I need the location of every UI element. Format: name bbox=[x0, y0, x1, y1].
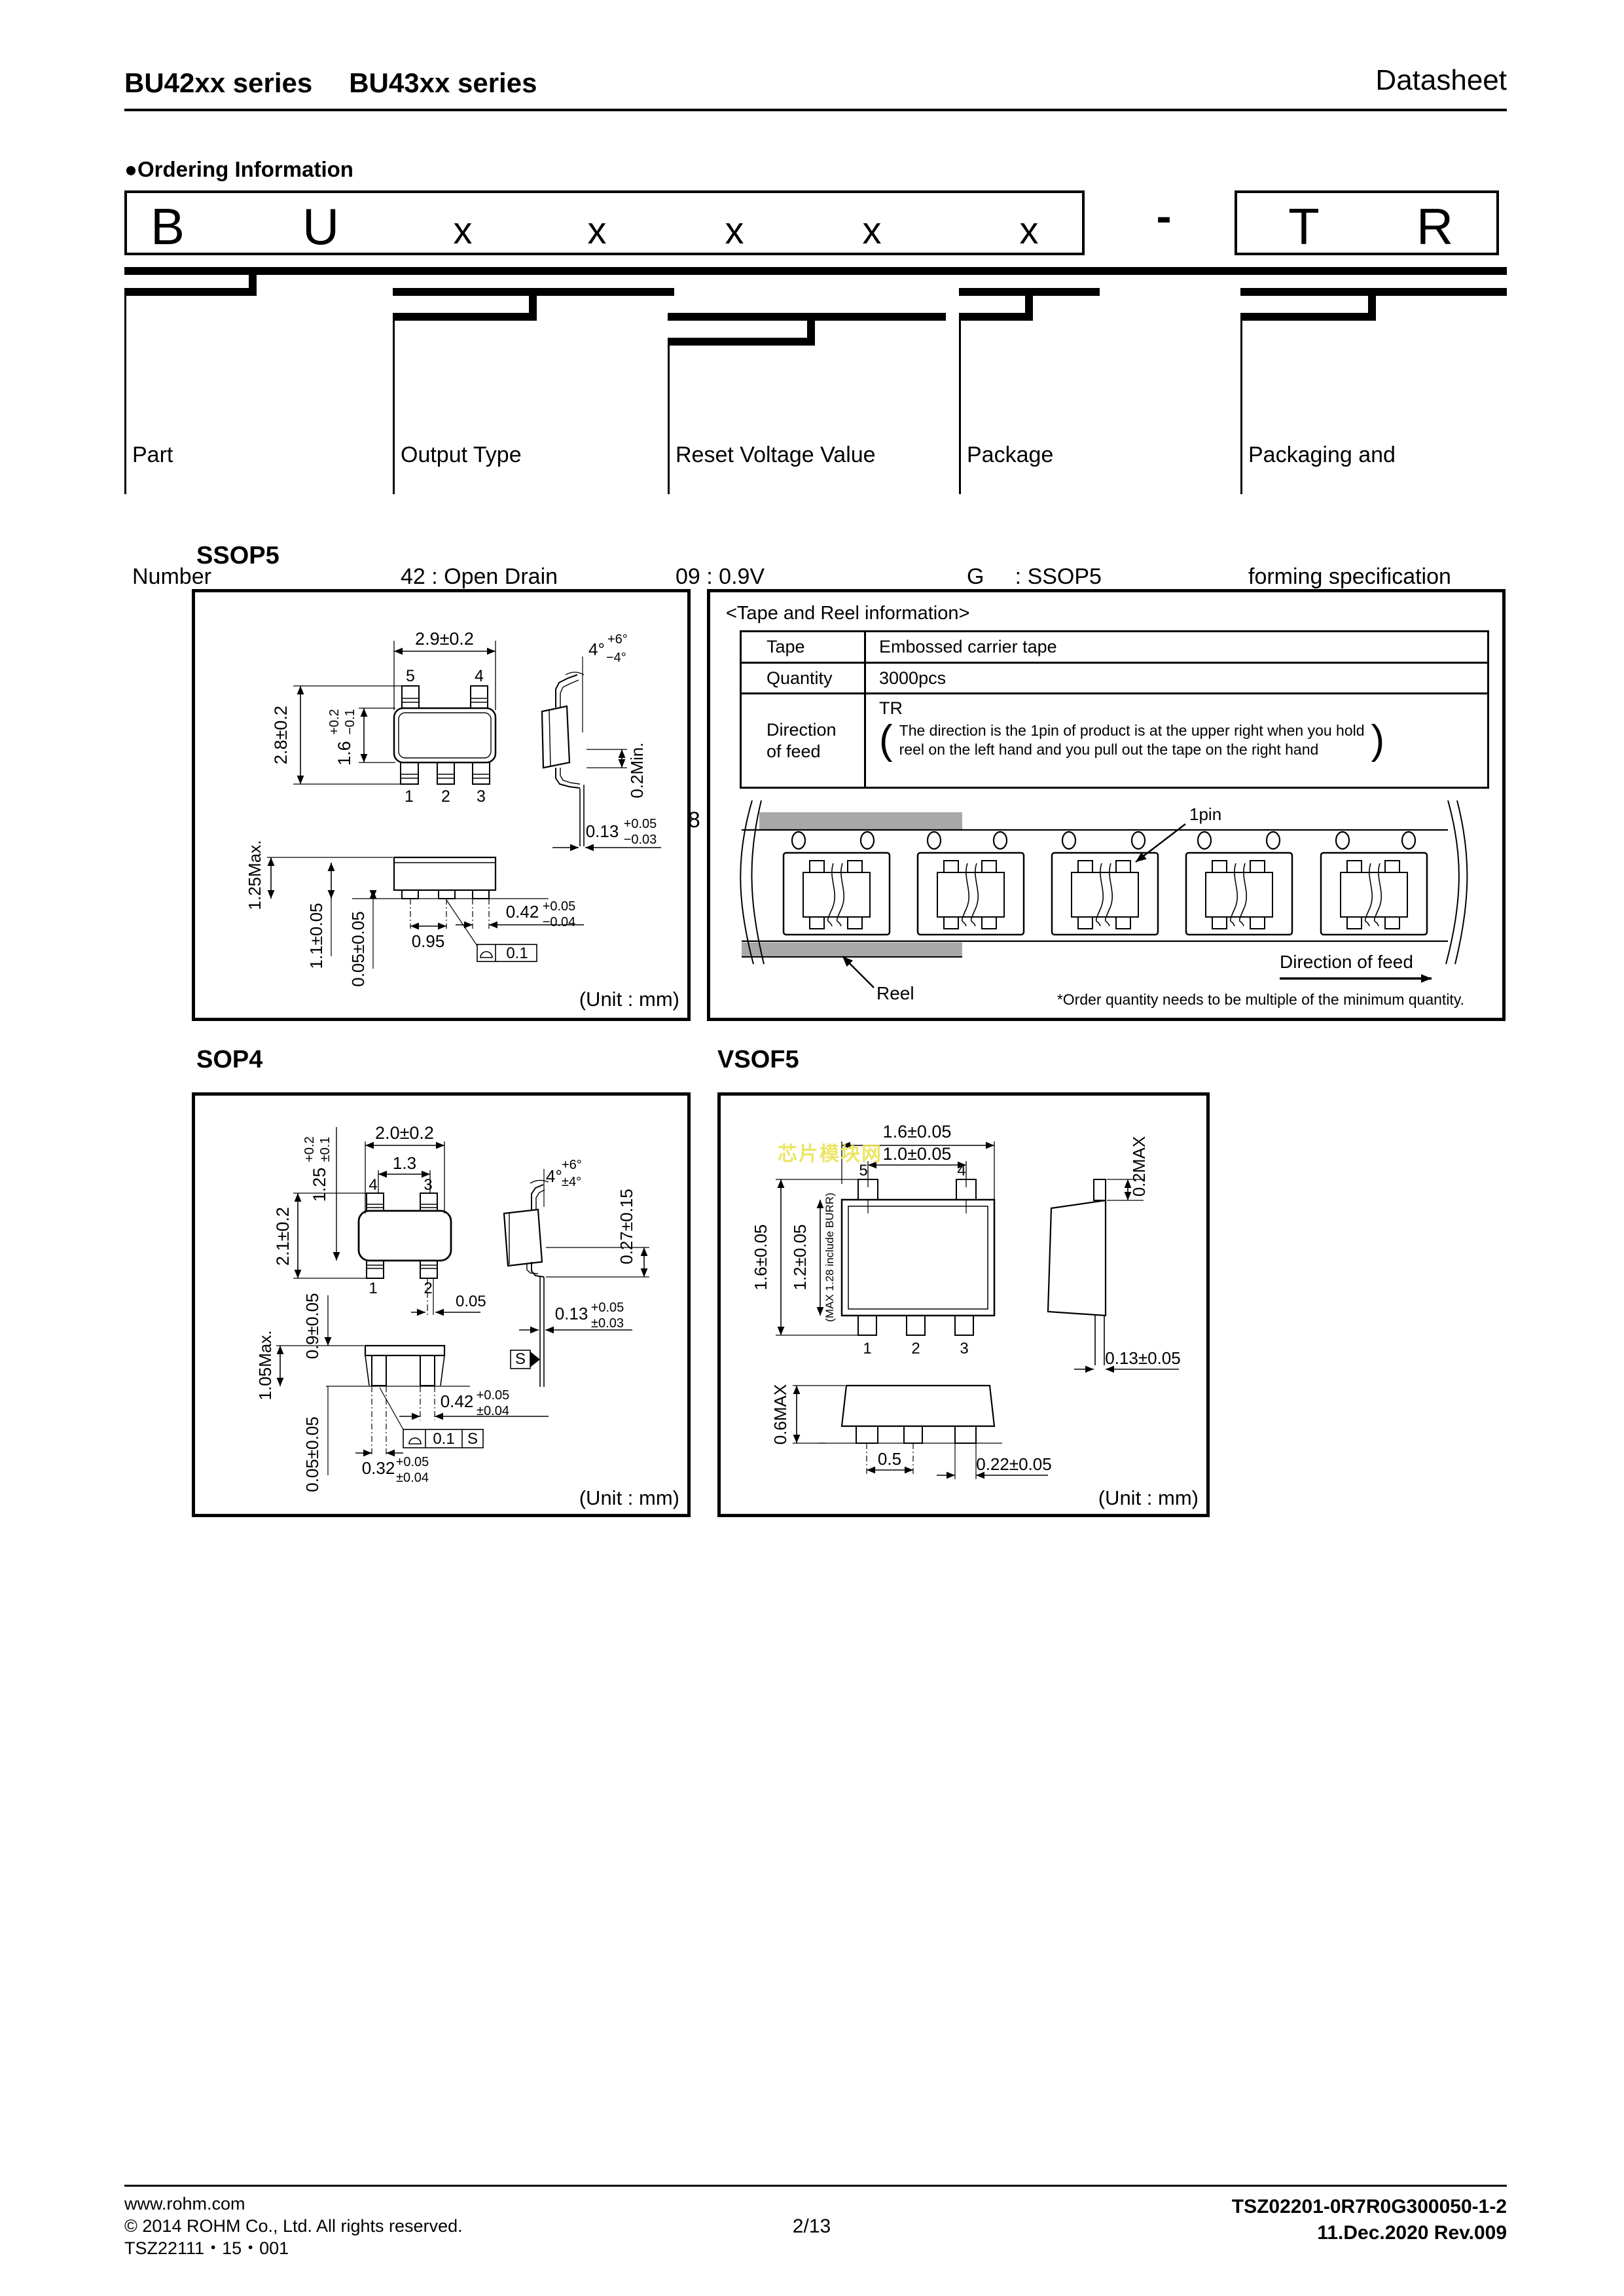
dim-tolerance: +0.05 bbox=[591, 1300, 624, 1315]
reel-callout: Reel bbox=[876, 983, 914, 1003]
paren-close: ) bbox=[1371, 720, 1385, 761]
dim-tolerance: +0.05 bbox=[624, 817, 657, 831]
col2-subbar bbox=[393, 313, 537, 321]
col2-stub bbox=[529, 296, 537, 314]
datum-label: S bbox=[515, 1350, 526, 1368]
suffix-char-r: R bbox=[1405, 197, 1464, 257]
tape-pocket bbox=[1321, 853, 1427, 935]
row-label: of feed bbox=[767, 741, 864, 762]
dim-label: 1.3 bbox=[393, 1153, 416, 1173]
col5-line bbox=[1240, 321, 1242, 494]
reel-arrow bbox=[842, 956, 874, 988]
feed-direction-label: Direction of feed bbox=[1280, 952, 1413, 972]
col4-stub bbox=[1025, 296, 1033, 314]
paren-open: ( bbox=[879, 720, 893, 761]
direction-note-line: The direction is the 1pin of product is … bbox=[899, 722, 1365, 739]
pin-number: 3 bbox=[960, 1340, 968, 1357]
table-row-direction: Direction of feed TR ( The direction is … bbox=[742, 694, 1487, 787]
order-note: *Order quantity needs to be multiple of … bbox=[1057, 991, 1464, 1008]
dim-label: 0.13±0.05 bbox=[1105, 1348, 1180, 1368]
pin1-callout: 1pin bbox=[1189, 804, 1221, 824]
dim-label: 0.13 bbox=[586, 821, 619, 841]
dim-tolerance: +0.2 bbox=[302, 1136, 317, 1162]
ordering-main-bar bbox=[124, 267, 1507, 275]
dim-tolerance: −0.04 bbox=[543, 915, 576, 929]
row-value: 3000pcs bbox=[879, 668, 946, 689]
pin-number: 1 bbox=[405, 787, 414, 806]
code-char-3: x bbox=[433, 209, 492, 253]
dim-label: 0.2MAX bbox=[1129, 1136, 1149, 1197]
table-row-quantity: Quantity 3000pcs bbox=[742, 664, 1487, 694]
tape-cover-bottom bbox=[742, 942, 962, 957]
dim-tolerance: ±0.03 bbox=[591, 1316, 624, 1331]
flatness-value: 0.1 bbox=[433, 1430, 454, 1448]
pin-number: 1 bbox=[863, 1340, 871, 1357]
pin-number: 4 bbox=[475, 667, 484, 685]
dim-label: 1.05Max. bbox=[255, 1331, 275, 1401]
dim-label: 0.27±0.15 bbox=[617, 1189, 636, 1264]
dim-label: 0.05±0.05 bbox=[302, 1416, 322, 1492]
col4-tab bbox=[959, 288, 1100, 296]
dim-tolerance: +6° bbox=[607, 632, 628, 647]
pin-number: 3 bbox=[424, 1176, 432, 1194]
pin-number: 4 bbox=[957, 1162, 965, 1179]
direction-note-line: reel on the left hand and you pull out t… bbox=[899, 741, 1319, 758]
pin-number: 3 bbox=[477, 787, 486, 806]
unit-label: (Unit : mm) bbox=[1098, 1486, 1199, 1509]
datum-label: S bbox=[467, 1430, 478, 1448]
row-value: Embossed carrier tape bbox=[879, 637, 1057, 657]
footer-doc-number: TSZ02201-0R7R0G300050-1-2 bbox=[1232, 2194, 1507, 2220]
col2-tab bbox=[393, 288, 674, 296]
col1-line bbox=[124, 296, 126, 494]
pin-number: 1 bbox=[369, 1280, 377, 1297]
col3-stub bbox=[807, 321, 815, 339]
code-char-2: U bbox=[291, 197, 350, 257]
sop4-drawing: 2.0±0.2 1.3 1.25 +0.2 ±0.1 2.1±0.2 4 3 1… bbox=[195, 1096, 687, 1514]
series-title-right: BU43xx series bbox=[349, 67, 537, 99]
dim-label: 0.5 bbox=[878, 1449, 901, 1469]
dim-tolerance: ±0.04 bbox=[396, 1471, 429, 1485]
code-char-7: x bbox=[1000, 209, 1058, 253]
dim-label: 1.0±0.05 bbox=[883, 1144, 952, 1164]
footer-rule bbox=[124, 2185, 1507, 2187]
tape-reel-title: <Tape and Reel information> bbox=[726, 603, 969, 624]
part-code-box: B U x x x x x bbox=[124, 190, 1085, 255]
dim-tolerance: −0.03 bbox=[624, 833, 657, 847]
code-char-1: B bbox=[138, 197, 197, 257]
ssop5-drawing-box: 2.9±0.2 5 4 1 2 3 2.8±0.2 1.6 +0.2 −0.1 … bbox=[192, 589, 691, 1021]
dim-label: 4° bbox=[546, 1166, 562, 1186]
dim-tolerance: ±0.04 bbox=[477, 1404, 509, 1418]
pin-number: 2 bbox=[424, 1280, 432, 1297]
datasheet-page: BU42xx series BU43xx series Datasheet ●O… bbox=[0, 0, 1624, 2296]
row-label: Quantity bbox=[767, 668, 864, 689]
direction-code: TR bbox=[879, 698, 903, 719]
tape-cover-top bbox=[759, 812, 962, 829]
dim-label: 0.32 bbox=[362, 1458, 395, 1478]
row-label: Tape bbox=[767, 637, 864, 657]
pin-number: 2 bbox=[441, 787, 450, 806]
code-char-4: x bbox=[568, 209, 626, 253]
dim-label: 2.9±0.2 bbox=[415, 629, 474, 649]
dim-label: 1.25 bbox=[310, 1168, 329, 1202]
dim-label: 0.2Min. bbox=[627, 742, 647, 798]
dim-label: 1.25Max. bbox=[245, 840, 264, 910]
tape-reel-box: <Tape and Reel information> Tape Embosse… bbox=[707, 589, 1506, 1021]
col3-bar bbox=[668, 313, 946, 321]
dim-label: 0.22±0.05 bbox=[976, 1454, 1051, 1474]
footer-url: www.rohm.com bbox=[124, 2193, 463, 2215]
dim-label: (MAX 1.28 include BURR) bbox=[823, 1193, 836, 1321]
suffix-char-t: T bbox=[1274, 197, 1333, 257]
code-char-6: x bbox=[842, 209, 901, 253]
flatness-value: 0.1 bbox=[506, 944, 528, 962]
col3-line bbox=[668, 346, 670, 494]
bullet-icon: ● bbox=[124, 157, 137, 181]
col4-line bbox=[959, 321, 961, 494]
dim-label: 4° bbox=[588, 639, 605, 659]
col5-subbar bbox=[1240, 313, 1376, 321]
suffix-box: T R bbox=[1235, 190, 1499, 255]
footer-revision: 11.Dec.2020 Rev.009 bbox=[1232, 2220, 1507, 2246]
dim-label: 2.8±0.2 bbox=[271, 706, 291, 764]
dim-label: 0.42 bbox=[441, 1391, 474, 1411]
col5-tab bbox=[1240, 288, 1507, 296]
unit-label: (Unit : mm) bbox=[579, 988, 679, 1011]
dim-tolerance: +0.05 bbox=[396, 1455, 429, 1469]
col2-line bbox=[393, 321, 395, 494]
doc-type-label: Datasheet bbox=[1375, 64, 1507, 97]
tape-pocket bbox=[784, 853, 890, 935]
dim-tolerance: −0.1 bbox=[343, 709, 357, 734]
ssop5-section-title: SSOP5 bbox=[196, 542, 280, 570]
pin-number: 2 bbox=[911, 1340, 920, 1357]
col4-subbar bbox=[959, 313, 1033, 321]
dim-tolerance: +0.05 bbox=[543, 899, 576, 914]
dim-tolerance: ±4° bbox=[562, 1175, 581, 1189]
dim-label: 2.1±0.2 bbox=[273, 1207, 293, 1266]
col5-stub bbox=[1368, 296, 1376, 314]
pin-number: 4 bbox=[369, 1176, 377, 1194]
pin-number: 5 bbox=[406, 667, 415, 685]
tape-pocket bbox=[1052, 853, 1158, 935]
dim-label: 0.05±0.05 bbox=[348, 911, 368, 986]
dim-tolerance: +0.2 bbox=[327, 709, 342, 734]
sprocket-holes bbox=[792, 832, 1415, 849]
sop4-drawing-box: 2.0±0.2 1.3 1.25 +0.2 ±0.1 2.1±0.2 4 3 1… bbox=[192, 1092, 691, 1517]
tape-reel-table: Tape Embossed carrier tape Quantity 3000… bbox=[740, 630, 1489, 789]
watermark: 芯片模块网 bbox=[778, 1138, 882, 1166]
dim-label: 0.95 bbox=[412, 931, 445, 951]
col1-tab bbox=[124, 288, 257, 296]
header: BU42xx series BU43xx series bbox=[124, 67, 537, 99]
unit-label: (Unit : mm) bbox=[579, 1486, 679, 1509]
table-row-tape: Tape Embossed carrier tape bbox=[742, 632, 1487, 664]
vsof5-section-title: VSOF5 bbox=[717, 1046, 799, 1074]
col3-subbar bbox=[668, 338, 815, 346]
dim-label: 0.9±0.05 bbox=[302, 1293, 322, 1359]
footer-doc-code: TSZ22111・15・001 bbox=[124, 2237, 463, 2259]
dim-label: 0.13 bbox=[555, 1304, 588, 1323]
dim-tolerance: ±0.1 bbox=[318, 1137, 333, 1162]
dim-label: 1.2±0.05 bbox=[790, 1224, 810, 1290]
dim-label: 1.1±0.05 bbox=[306, 903, 326, 969]
dim-tolerance: −4° bbox=[606, 651, 626, 665]
dim-label: 0.6MAX bbox=[770, 1384, 790, 1445]
footer-copyright: © 2014 ROHM Co., Ltd. All rights reserve… bbox=[124, 2215, 463, 2237]
tape-pocket bbox=[1186, 853, 1292, 935]
dim-label: 1.6±0.05 bbox=[883, 1122, 952, 1141]
ssop5-drawing: 2.9±0.2 5 4 1 2 3 2.8±0.2 1.6 +0.2 −0.1 … bbox=[195, 592, 687, 1018]
dim-tolerance: +6° bbox=[562, 1158, 582, 1172]
dim-label: 1.6±0.05 bbox=[751, 1224, 770, 1290]
dim-tolerance: +0.05 bbox=[477, 1388, 510, 1403]
dim-label: 2.0±0.2 bbox=[375, 1123, 434, 1143]
dim-label: 1.6 bbox=[334, 741, 354, 766]
series-title-left: BU42xx series bbox=[124, 67, 312, 99]
dim-label: 0.42 bbox=[506, 902, 539, 922]
col1-stub bbox=[249, 274, 257, 289]
page-number: 2/13 bbox=[746, 2215, 877, 2238]
direction-note: ( The direction is the 1pin of product i… bbox=[879, 720, 1384, 761]
tape-diagram: 1pin Direction of feed Reel *Order quant… bbox=[712, 795, 1501, 1019]
header-rule bbox=[124, 109, 1507, 111]
tape-pocket bbox=[918, 853, 1024, 935]
code-char-5: x bbox=[705, 209, 764, 253]
dim-label: 0.05 bbox=[456, 1293, 486, 1310]
row-label: Direction bbox=[767, 719, 864, 741]
tape-curl-right bbox=[1446, 800, 1467, 964]
sop4-section-title: SOP4 bbox=[196, 1046, 262, 1074]
ordering-title: ●Ordering Information bbox=[124, 157, 353, 182]
code-dash: - bbox=[1144, 190, 1183, 242]
